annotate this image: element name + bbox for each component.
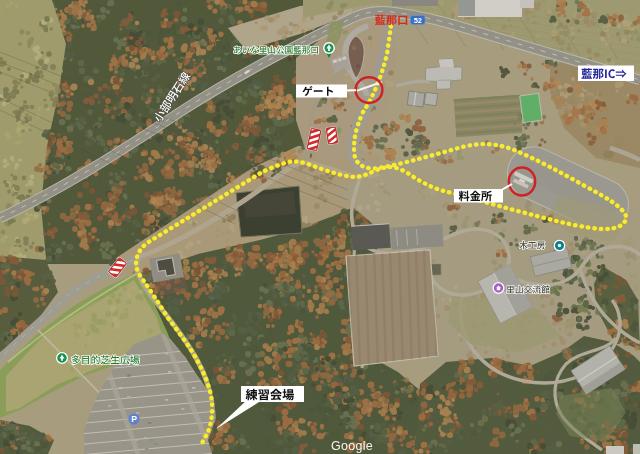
svg-text:P: P — [131, 414, 137, 424]
svg-text:Google: Google — [331, 439, 373, 453]
svg-text:52: 52 — [414, 16, 422, 25]
